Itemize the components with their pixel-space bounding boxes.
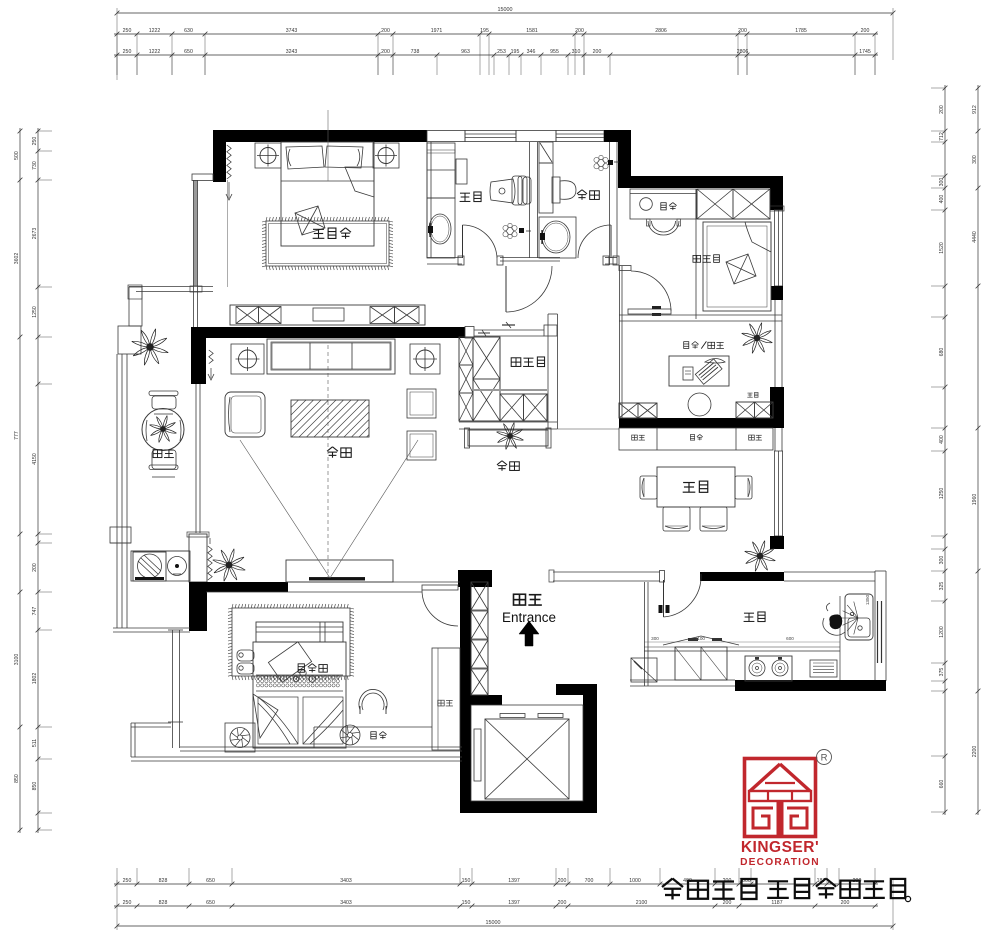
svg-text:200: 200: [575, 28, 584, 34]
svg-text:4440: 4440: [972, 231, 978, 243]
svg-text:850: 850: [14, 774, 20, 783]
svg-text:2100: 2100: [636, 900, 648, 906]
svg-text:346: 346: [527, 49, 536, 55]
svg-text:2806: 2806: [655, 28, 667, 34]
svg-text:1581: 1581: [526, 28, 538, 34]
svg-text:1802: 1802: [32, 673, 38, 685]
svg-text:1745: 1745: [859, 49, 871, 55]
svg-text:200: 200: [738, 28, 747, 34]
svg-text:1785: 1785: [795, 28, 807, 34]
svg-text:828: 828: [159, 900, 168, 906]
svg-text:200: 200: [381, 49, 390, 55]
svg-text:1222: 1222: [149, 49, 161, 55]
svg-text:600: 600: [786, 636, 794, 641]
svg-text:250: 250: [123, 900, 132, 906]
svg-text:2673: 2673: [32, 228, 38, 240]
svg-text:300: 300: [939, 178, 945, 187]
svg-text:1520: 1520: [939, 242, 945, 254]
svg-text:1397: 1397: [508, 900, 520, 906]
svg-text:4150: 4150: [32, 453, 38, 465]
svg-text:3403: 3403: [340, 878, 352, 884]
svg-text:300: 300: [939, 556, 945, 565]
svg-text:200: 200: [32, 563, 38, 572]
svg-text:250: 250: [123, 49, 132, 55]
svg-text:R: R: [821, 753, 828, 764]
svg-text:730: 730: [32, 161, 38, 170]
svg-text:200: 200: [939, 105, 945, 114]
svg-text:15000: 15000: [498, 7, 513, 13]
svg-text:660: 660: [939, 780, 945, 789]
svg-text:850: 850: [32, 782, 38, 791]
svg-text:300: 300: [651, 636, 659, 641]
svg-text:150: 150: [462, 900, 471, 906]
svg-text:1200: 1200: [939, 626, 945, 638]
svg-text:250: 250: [123, 28, 132, 34]
svg-text:2806: 2806: [737, 49, 749, 55]
svg-text:250: 250: [123, 878, 132, 884]
svg-text:511: 511: [32, 739, 38, 747]
svg-text:650: 650: [184, 49, 193, 55]
svg-text:375: 375: [939, 668, 945, 677]
svg-text:DECORATION: DECORATION: [740, 857, 820, 868]
svg-text:3743: 3743: [286, 28, 298, 34]
svg-text:325: 325: [939, 582, 945, 591]
svg-text:400: 400: [939, 195, 945, 204]
svg-text:1187: 1187: [771, 900, 782, 906]
svg-text:1397: 1397: [508, 878, 520, 884]
svg-text:400: 400: [939, 435, 945, 444]
svg-text:650: 650: [206, 900, 215, 906]
svg-text:200: 200: [841, 900, 850, 906]
svg-text:15000: 15000: [486, 920, 501, 926]
svg-text:3403: 3403: [340, 900, 352, 906]
svg-text:680: 680: [939, 348, 945, 357]
svg-text:200: 200: [558, 878, 567, 884]
svg-text:200: 200: [381, 28, 390, 34]
svg-text:200: 200: [723, 900, 732, 906]
svg-text:1250: 1250: [939, 488, 945, 500]
svg-text:700: 700: [585, 878, 594, 884]
svg-text:195: 195: [480, 28, 489, 34]
svg-text:200: 200: [861, 28, 870, 34]
svg-text:200: 200: [593, 49, 602, 55]
svg-text:1250: 1250: [32, 306, 38, 318]
svg-text:310: 310: [572, 49, 581, 55]
svg-text:650: 650: [206, 878, 215, 884]
svg-text:630: 630: [184, 28, 193, 34]
svg-text:963: 963: [461, 49, 470, 55]
svg-text:500: 500: [14, 151, 20, 160]
svg-text:150: 150: [462, 878, 471, 884]
svg-text:253: 253: [497, 49, 506, 55]
svg-text:200: 200: [558, 900, 567, 906]
svg-text:738: 738: [411, 49, 420, 55]
svg-text:955: 955: [550, 49, 559, 55]
svg-text:777: 777: [14, 431, 20, 440]
svg-text:3602: 3602: [14, 253, 20, 265]
svg-text:3100: 3100: [14, 654, 20, 666]
svg-text:1960: 1960: [972, 494, 978, 506]
svg-text:195: 195: [511, 49, 520, 55]
svg-text:712: 712: [939, 132, 945, 141]
svg-text:1350: 1350: [865, 594, 870, 605]
svg-text:828: 828: [159, 878, 168, 884]
svg-text:1100: 1100: [695, 636, 705, 641]
svg-text:1971: 1971: [431, 28, 443, 34]
svg-text:250: 250: [32, 137, 38, 146]
svg-text:747: 747: [32, 607, 38, 616]
svg-text:1222: 1222: [149, 28, 161, 34]
svg-text:2200: 2200: [972, 746, 978, 758]
svg-text:3243: 3243: [286, 49, 298, 55]
svg-text:KINGSER': KINGSER': [741, 839, 819, 856]
svg-text:1000: 1000: [629, 878, 641, 884]
svg-text:912: 912: [972, 105, 978, 114]
svg-text:300: 300: [972, 155, 978, 164]
